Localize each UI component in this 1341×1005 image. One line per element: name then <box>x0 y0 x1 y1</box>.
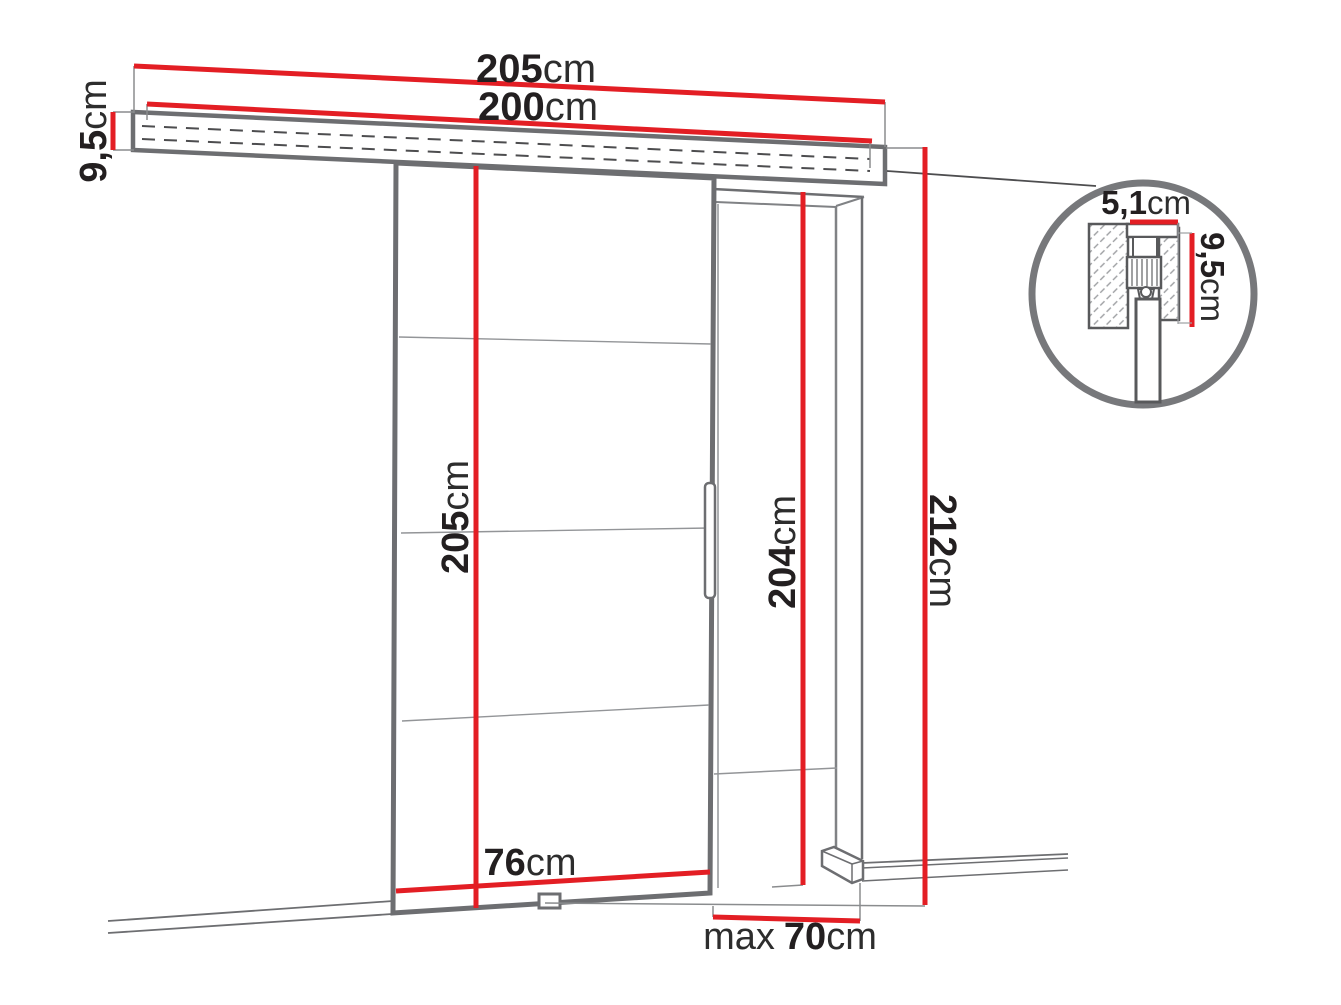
label-door-width-value: 76 <box>484 842 526 884</box>
label-rail-inner-value: 200 <box>478 85 545 129</box>
label-detail-height-95cm: 9,5cm <box>1195 232 1232 322</box>
floor-line-right-bottom <box>862 870 1068 881</box>
label-total-height-value: 212 <box>921 494 963 557</box>
label-door-height-unit: cm <box>435 460 477 511</box>
label-rail-inner-unit: cm <box>545 85 598 129</box>
frame-baseboard-block <box>822 847 863 883</box>
label-detail-height-unit: cm <box>1195 278 1232 322</box>
detail-door-panel-section <box>1136 299 1160 402</box>
sliding-door-dimension-diagram: 205cm 200cm 9,5cm 205cm 204cm 212cm 76cm… <box>0 0 1341 1005</box>
label-opening-width-prefix: max <box>703 916 775 958</box>
floor-line-right-top <box>862 854 1068 863</box>
label-detail-width-51cm: 5,1cm <box>1101 184 1191 221</box>
frame-head-inner <box>716 202 836 207</box>
label-door-height-205cm: 205cm <box>435 460 477 574</box>
label-rail-inner-200cm: 200cm <box>478 85 598 129</box>
label-rail-height-value: 9,5 <box>73 130 115 183</box>
frame-head-miter <box>836 197 864 206</box>
label-opening-height-unit: cm <box>762 495 804 546</box>
label-total-height-212cm: 212cm <box>921 494 963 608</box>
floor-line-right-mid <box>862 858 1068 868</box>
detail-hanger-bracket <box>1133 237 1157 257</box>
door-floor-guide <box>539 894 560 908</box>
label-detail-width-unit: cm <box>1147 184 1191 221</box>
floor-line-left-bottom <box>108 914 392 933</box>
label-opening-height-value: 204 <box>762 546 804 609</box>
opening-floor-line <box>714 768 837 774</box>
label-rail-height-unit: cm <box>73 79 115 130</box>
label-rail-height-95cm: 9,5cm <box>73 79 115 182</box>
detail-leader-line <box>887 171 1096 186</box>
frame-head-outer <box>713 189 864 197</box>
detail-wall-block-left <box>1089 224 1128 328</box>
label-opening-width-max70cm: max70cm <box>703 916 877 958</box>
label-total-height-unit: cm <box>921 557 963 608</box>
floor-line-left-top <box>108 901 393 921</box>
label-opening-width-value: 70 <box>784 916 826 958</box>
label-detail-height-value: 9,5 <box>1195 232 1232 278</box>
label-opening-width-unit: cm <box>826 916 877 958</box>
label-door-height-value: 205 <box>435 511 477 574</box>
label-door-width-76cm: 76cm <box>484 842 577 884</box>
label-door-width-unit: cm <box>526 842 577 884</box>
ext-opening-height-bottom <box>772 885 803 887</box>
detail-track-top-profile <box>1127 224 1178 237</box>
door-handle <box>705 483 715 598</box>
label-detail-width-value: 5,1 <box>1101 184 1147 221</box>
label-opening-height-204cm: 204cm <box>762 495 804 609</box>
detail-pivot-bolt <box>1141 287 1151 297</box>
ext-floor-reference <box>545 903 925 906</box>
